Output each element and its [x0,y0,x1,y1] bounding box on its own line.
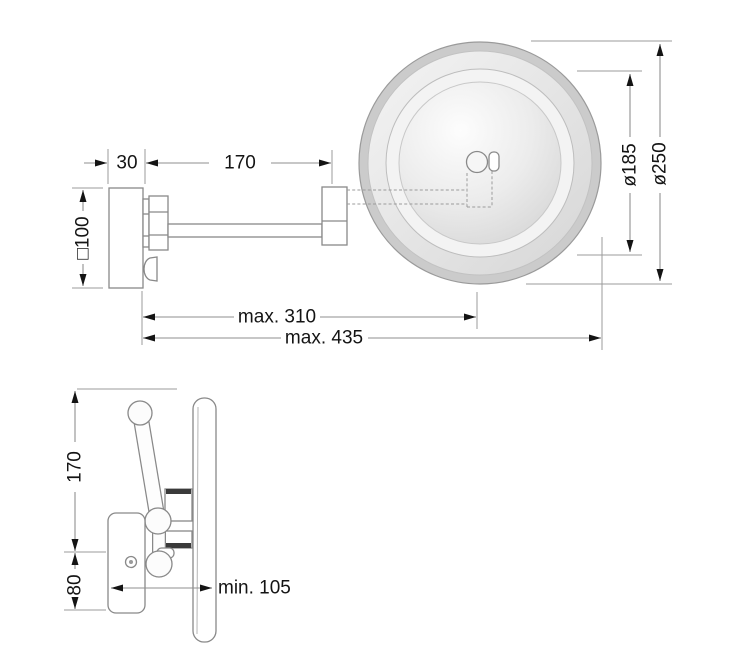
wall-plate-front [109,188,143,288]
dim-label-min105: min. 105 [218,578,291,599]
dimension-arm-length: 170 [146,150,332,184]
arm-mid-joint [145,508,171,534]
front-view: 30 170 □100 max. 310 [72,41,672,350]
dim-label-max310: max. 310 [238,307,316,328]
pivot-block-body [322,187,347,245]
mirror-slab [193,398,216,642]
knuckle-tab [489,152,499,171]
arm-lower-joint [146,551,172,577]
dim-label-square100: □100 [73,216,94,259]
dim-label-170: 170 [224,153,256,174]
hex-nut [149,196,168,250]
dim-label-side170: 170 [65,451,86,483]
dim-label-d250: ø250 [650,142,671,185]
dim-label-30: 30 [116,153,137,174]
dimension-plate-depth: 30 [84,149,145,184]
side-view: 170 80 min. 105 [64,389,291,642]
arm-top-knob [128,401,152,425]
dim-label-max435: max. 435 [285,328,363,349]
knuckle-ball [467,152,488,173]
dim-label-side80: 80 [65,574,86,595]
center-knuckle [467,152,500,173]
dim-label-d185: ø185 [620,143,641,186]
mirror-dimension-drawing: 30 170 □100 max. 310 [0,0,730,672]
arm-shaft-fill [140,413,158,521]
boss-lower-cap [166,543,191,548]
retaining-clip [144,257,157,281]
dimension-lower-height: 80 [64,552,106,610]
swivel-hex-boss [143,196,168,250]
boss-upper-cap [166,489,191,494]
technical-drawing-canvas: 30 170 □100 max. 310 [0,0,730,672]
arm-front [168,224,322,237]
boss-collar [143,199,149,247]
mirror-edge-side [193,398,216,642]
mounting-screw-center [129,560,133,564]
wall-plate-side [108,513,145,613]
pivot-block [322,187,347,245]
dimension-plate-square: □100 [72,188,103,288]
